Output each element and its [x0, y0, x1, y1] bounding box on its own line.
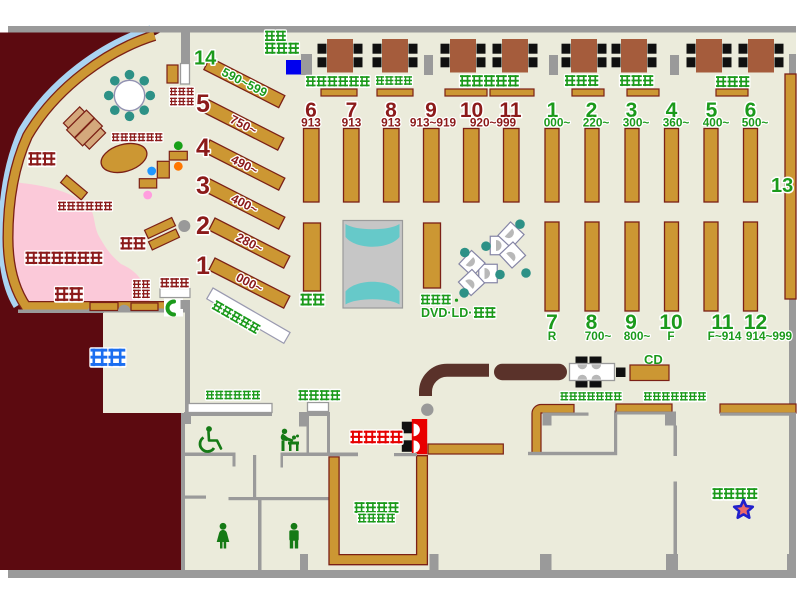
- svg-text:F: F: [667, 329, 674, 343]
- svg-text:13: 13: [771, 175, 793, 197]
- svg-text:300~: 300~: [623, 116, 650, 130]
- svg-text:913: 913: [301, 116, 321, 130]
- svg-text:000~: 000~: [544, 116, 571, 130]
- svg-text:DVD·LD·: DVD·LD·: [421, 306, 472, 320]
- svg-text:920~999: 920~999: [470, 116, 517, 130]
- svg-text:913~919: 913~919: [410, 116, 457, 130]
- svg-text:220~: 220~: [583, 116, 610, 130]
- svg-text:2: 2: [196, 212, 210, 240]
- svg-text:360~: 360~: [663, 116, 690, 130]
- svg-text:F~914: F~914: [708, 329, 742, 343]
- svg-text:700~: 700~: [585, 329, 612, 343]
- svg-text:1: 1: [196, 252, 210, 280]
- svg-text:3: 3: [196, 172, 210, 200]
- svg-text:4: 4: [196, 134, 210, 162]
- svg-text:913: 913: [381, 116, 401, 130]
- svg-text:800~: 800~: [624, 329, 651, 343]
- svg-text:500~: 500~: [742, 116, 769, 130]
- svg-text:14: 14: [194, 48, 217, 70]
- svg-text:914~999: 914~999: [746, 329, 793, 343]
- svg-text:R: R: [548, 329, 557, 343]
- svg-text:913: 913: [342, 116, 362, 130]
- svg-text:400~: 400~: [703, 116, 730, 130]
- svg-text:5: 5: [196, 90, 210, 118]
